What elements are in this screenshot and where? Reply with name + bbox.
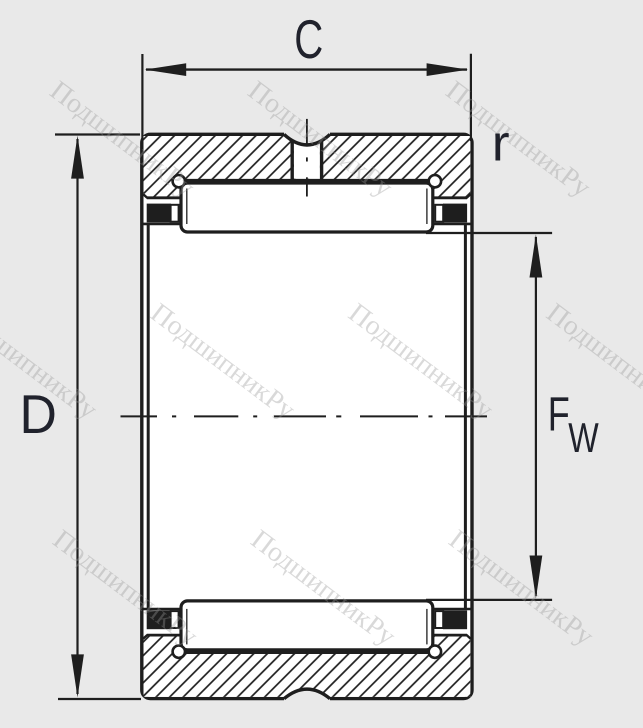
svg-text:C: C <box>294 9 323 71</box>
svg-text:D: D <box>20 385 57 445</box>
svg-text:W: W <box>568 414 599 461</box>
svg-text:r: r <box>492 116 510 173</box>
svg-text:F: F <box>548 388 570 441</box>
